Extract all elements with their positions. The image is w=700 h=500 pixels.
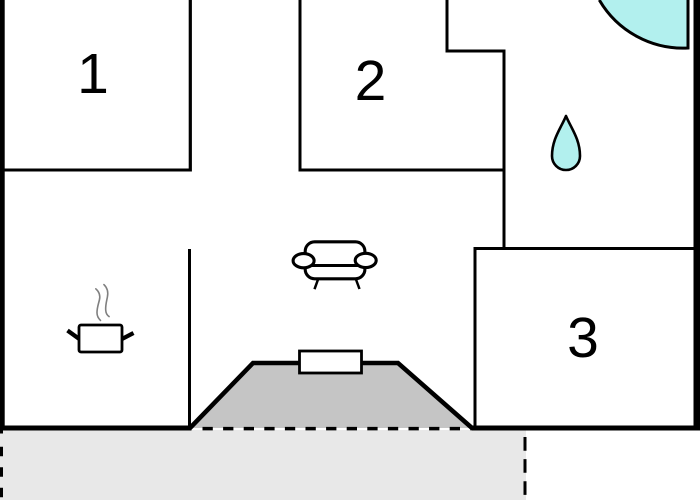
svg-text:3: 3 [567, 306, 599, 370]
svg-text:2: 2 [355, 49, 387, 113]
svg-text:1: 1 [77, 42, 109, 106]
